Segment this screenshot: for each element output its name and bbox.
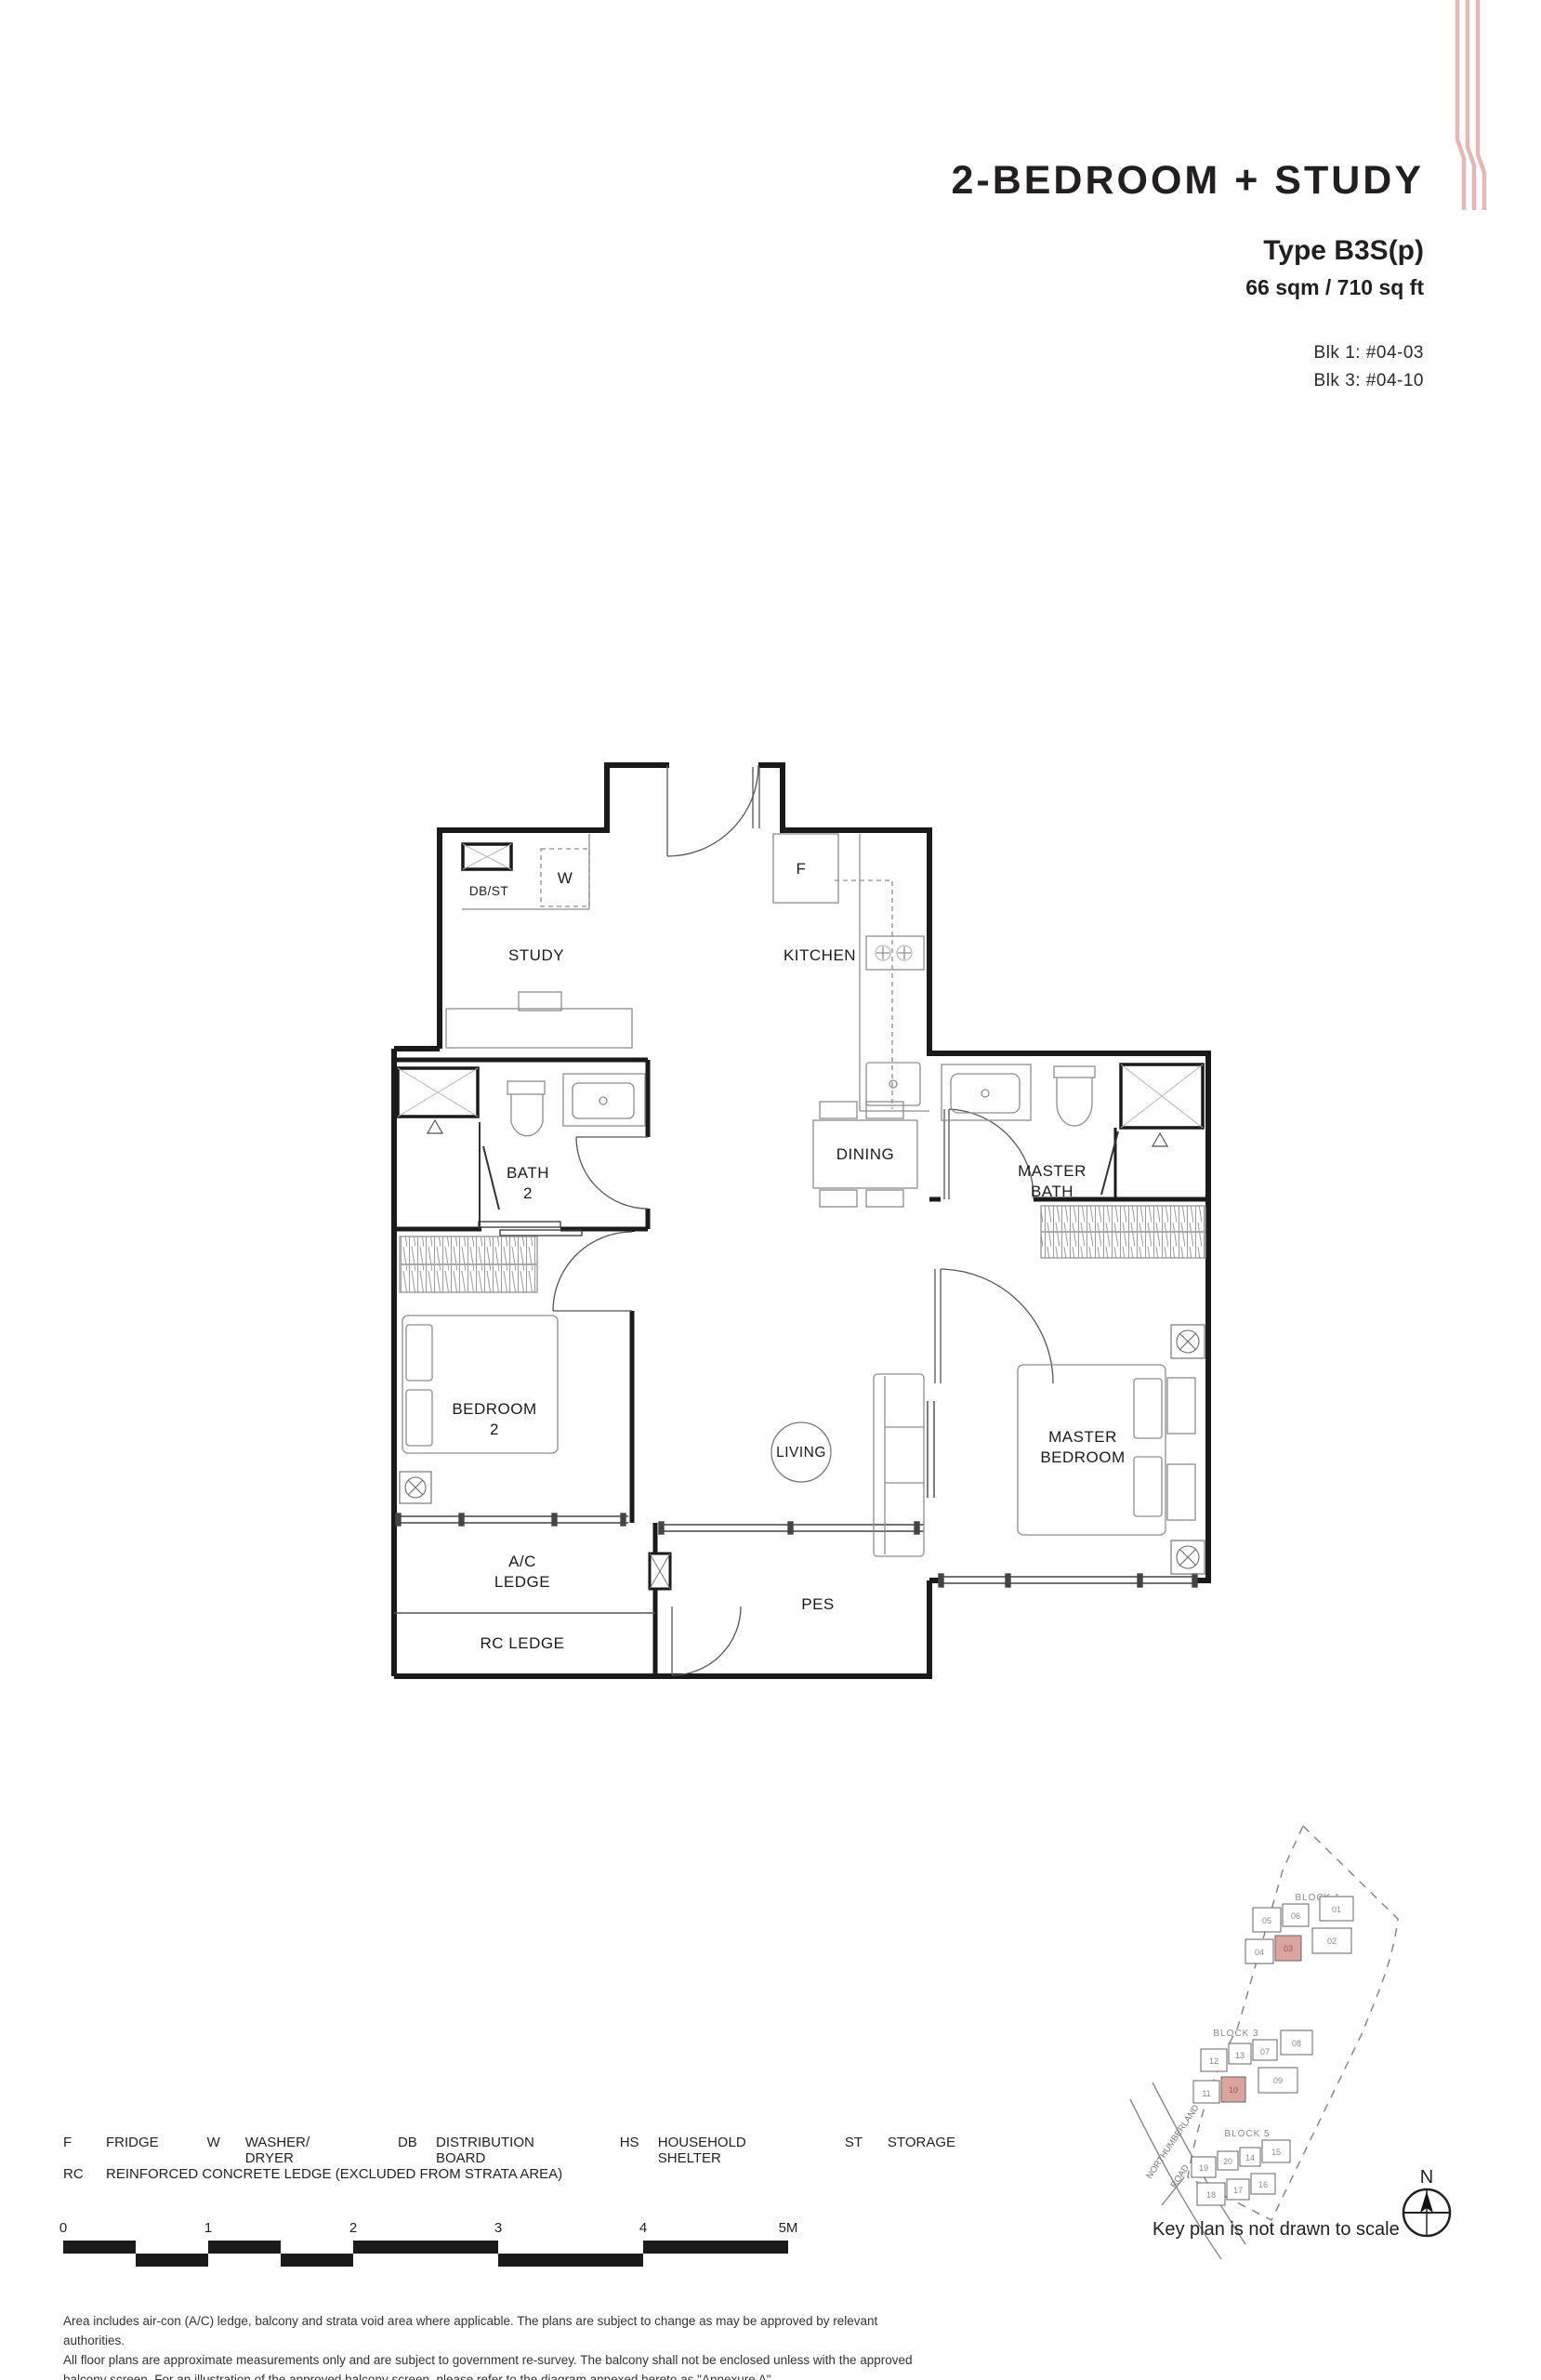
svg-text:14: 14 — [1245, 2153, 1255, 2162]
kitchen-sink — [866, 1063, 920, 1105]
svg-text:BATH: BATH — [1031, 1183, 1073, 1200]
svg-text:15: 15 — [1271, 2148, 1281, 2157]
bed-bedroom2 — [402, 1316, 558, 1453]
svg-text:2: 2 — [523, 1184, 533, 1202]
kitchen-counter — [860, 834, 929, 1111]
svg-text:16: 16 — [1258, 2180, 1268, 2189]
scale-ticks: 0 1 2 3 4 5M — [63, 2220, 788, 2237]
floor-plan-page: 2-BEDROOM + STUDY Type B3S(p) 66 sqm / 7… — [0, 0, 1541, 2380]
svg-text:A/C: A/C — [508, 1553, 536, 1570]
svg-text:19: 19 — [1199, 2163, 1208, 2173]
svg-text:04: 04 — [1255, 1948, 1264, 1957]
keyplan-caption: Key plan is not drawn to scale — [1152, 2219, 1400, 2240]
unit-area: 66 sqm / 710 sq ft — [951, 275, 1424, 300]
stove — [866, 936, 924, 970]
page-title: 2-BEDROOM + STUDY — [951, 158, 1424, 204]
svg-text:03: 03 — [1284, 1944, 1293, 1953]
study-chair — [519, 992, 561, 1011]
master-bath-sink — [942, 1064, 1031, 1120]
legend-item: W WASHER/ DRYER — [207, 2135, 349, 2166]
entry-door-frame — [753, 767, 759, 828]
svg-text:BEDROOM: BEDROOM — [452, 1400, 536, 1418]
label-bath2: BATH 2 — [507, 1164, 549, 1202]
fcu-master-1 — [1171, 1325, 1205, 1358]
title-block: 2-BEDROOM + STUDY Type B3S(p) 66 sqm / 7… — [951, 158, 1424, 395]
svg-text:17: 17 — [1233, 2186, 1243, 2195]
bath2-sink — [563, 1074, 645, 1126]
scale-bar: 0 1 2 3 4 5M — [63, 2220, 788, 2276]
fcu-bedroom2 — [400, 1472, 431, 1503]
svg-text:13: 13 — [1235, 2051, 1245, 2060]
decorative-lines — [1446, 0, 1506, 223]
north-label: N — [1420, 2167, 1433, 2188]
scale-bar-segments — [63, 2241, 788, 2268]
svg-text:02: 02 — [1327, 1937, 1337, 1946]
disclaimer: Area includes air-con (A/C) ledge, balco… — [63, 2311, 937, 2380]
wardrobe-master — [1041, 1206, 1205, 1258]
shaft-study — [463, 844, 511, 869]
svg-text:01: 01 — [1332, 1905, 1341, 1914]
label-rc-ledge: RC LEDGE — [481, 1634, 565, 1652]
svg-text:09: 09 — [1273, 2076, 1283, 2085]
svg-text:LEDGE: LEDGE — [494, 1573, 550, 1591]
svg-text:MASTER: MASTER — [1048, 1428, 1117, 1446]
label-fridge: F — [797, 860, 807, 878]
north-compass: N — [1403, 2167, 1450, 2236]
bath2-toilet — [507, 1081, 545, 1136]
label-bedroom2: BEDROOM 2 — [452, 1400, 536, 1438]
kitchen-overhead-cabinets — [835, 880, 892, 1109]
svg-text:11: 11 — [1202, 2089, 1210, 2098]
svg-text:12: 12 — [1209, 2056, 1218, 2066]
legend-item: HS HOUSEHOLD SHELTER — [620, 2135, 797, 2166]
label-master-bedroom: MASTER BEDROOM — [1040, 1428, 1125, 1466]
svg-text:08: 08 — [1292, 2039, 1301, 2048]
doors — [479, 765, 1053, 1675]
unit-blk3: Blk 3: #04-10 — [951, 367, 1424, 395]
wardrobes — [400, 1206, 1205, 1292]
legend-rc: RC REINFORCED CONCRETE LEDGE (EXCLUDED F… — [63, 2166, 562, 2182]
legend-row: F FRIDGE W WASHER/ DRYER DB DISTRIBUTION… — [63, 2135, 955, 2166]
master-bath-toilet — [1054, 1066, 1095, 1126]
keyplan-block5: BLOCK 5 19 20 14 15 18 17 16 — [1192, 2129, 1290, 2205]
svg-text:05: 05 — [1262, 1916, 1271, 1925]
svg-text:18: 18 — [1206, 2190, 1216, 2200]
block3-label: BLOCK 3 — [1213, 2029, 1258, 2039]
label-washer: W — [558, 869, 573, 887]
legend-item: DB DISTRIBUTION BOARD — [398, 2135, 572, 2166]
svg-text:20: 20 — [1223, 2157, 1232, 2166]
svg-text:BATH: BATH — [507, 1164, 549, 1182]
svg-text:MASTER: MASTER — [1018, 1162, 1087, 1180]
unit-blk1: Blk 1: #04-03 — [951, 339, 1424, 367]
study-desk — [446, 1009, 632, 1048]
legend-item: ST STORAGE — [845, 2135, 955, 2166]
label-master-bath: MASTER BATH — [1018, 1162, 1087, 1200]
label-ac-ledge: A/C LEDGE — [494, 1553, 550, 1591]
key-plan: NORTHUMBERLAND ROAD BLOCK 1 05 06 01 04 … — [1097, 1815, 1524, 2270]
keyplan-block1: BLOCK 1 05 06 01 04 03 02 — [1245, 1893, 1353, 1963]
shaft-pes — [650, 1554, 670, 1589]
svg-text:2: 2 — [490, 1421, 499, 1438]
label-pes: PES — [801, 1595, 835, 1613]
label-dining: DINING — [836, 1145, 895, 1163]
svg-text:10: 10 — [1229, 2085, 1238, 2095]
shower-bath2 — [398, 1068, 499, 1229]
unit-numbers: Blk 1: #04-03 Blk 3: #04-10 — [951, 339, 1424, 395]
unit-type: Type B3S(p) — [951, 235, 1424, 267]
block5-label: BLOCK 5 — [1224, 2129, 1270, 2139]
svg-text:BEDROOM: BEDROOM — [1040, 1448, 1125, 1466]
floor-plan: STUDY KITCHEN W F DB/ST DINING LIVING PE… — [390, 739, 1245, 1743]
label-study: STUDY — [508, 946, 564, 964]
label-kitchen: KITCHEN — [784, 946, 856, 964]
legend-item: F FRIDGE — [63, 2135, 159, 2166]
label-living: LIVING — [776, 1445, 826, 1461]
wardrobe-bedroom2 — [400, 1236, 537, 1292]
svg-text:07: 07 — [1260, 2047, 1270, 2056]
keyplan-block3: BLOCK 3 12 13 07 08 11 10 09 — [1193, 2029, 1312, 2103]
fcu-master-2 — [1171, 1540, 1205, 1574]
label-dbst: DB/ST — [469, 884, 508, 898]
svg-text:06: 06 — [1291, 1911, 1300, 1921]
